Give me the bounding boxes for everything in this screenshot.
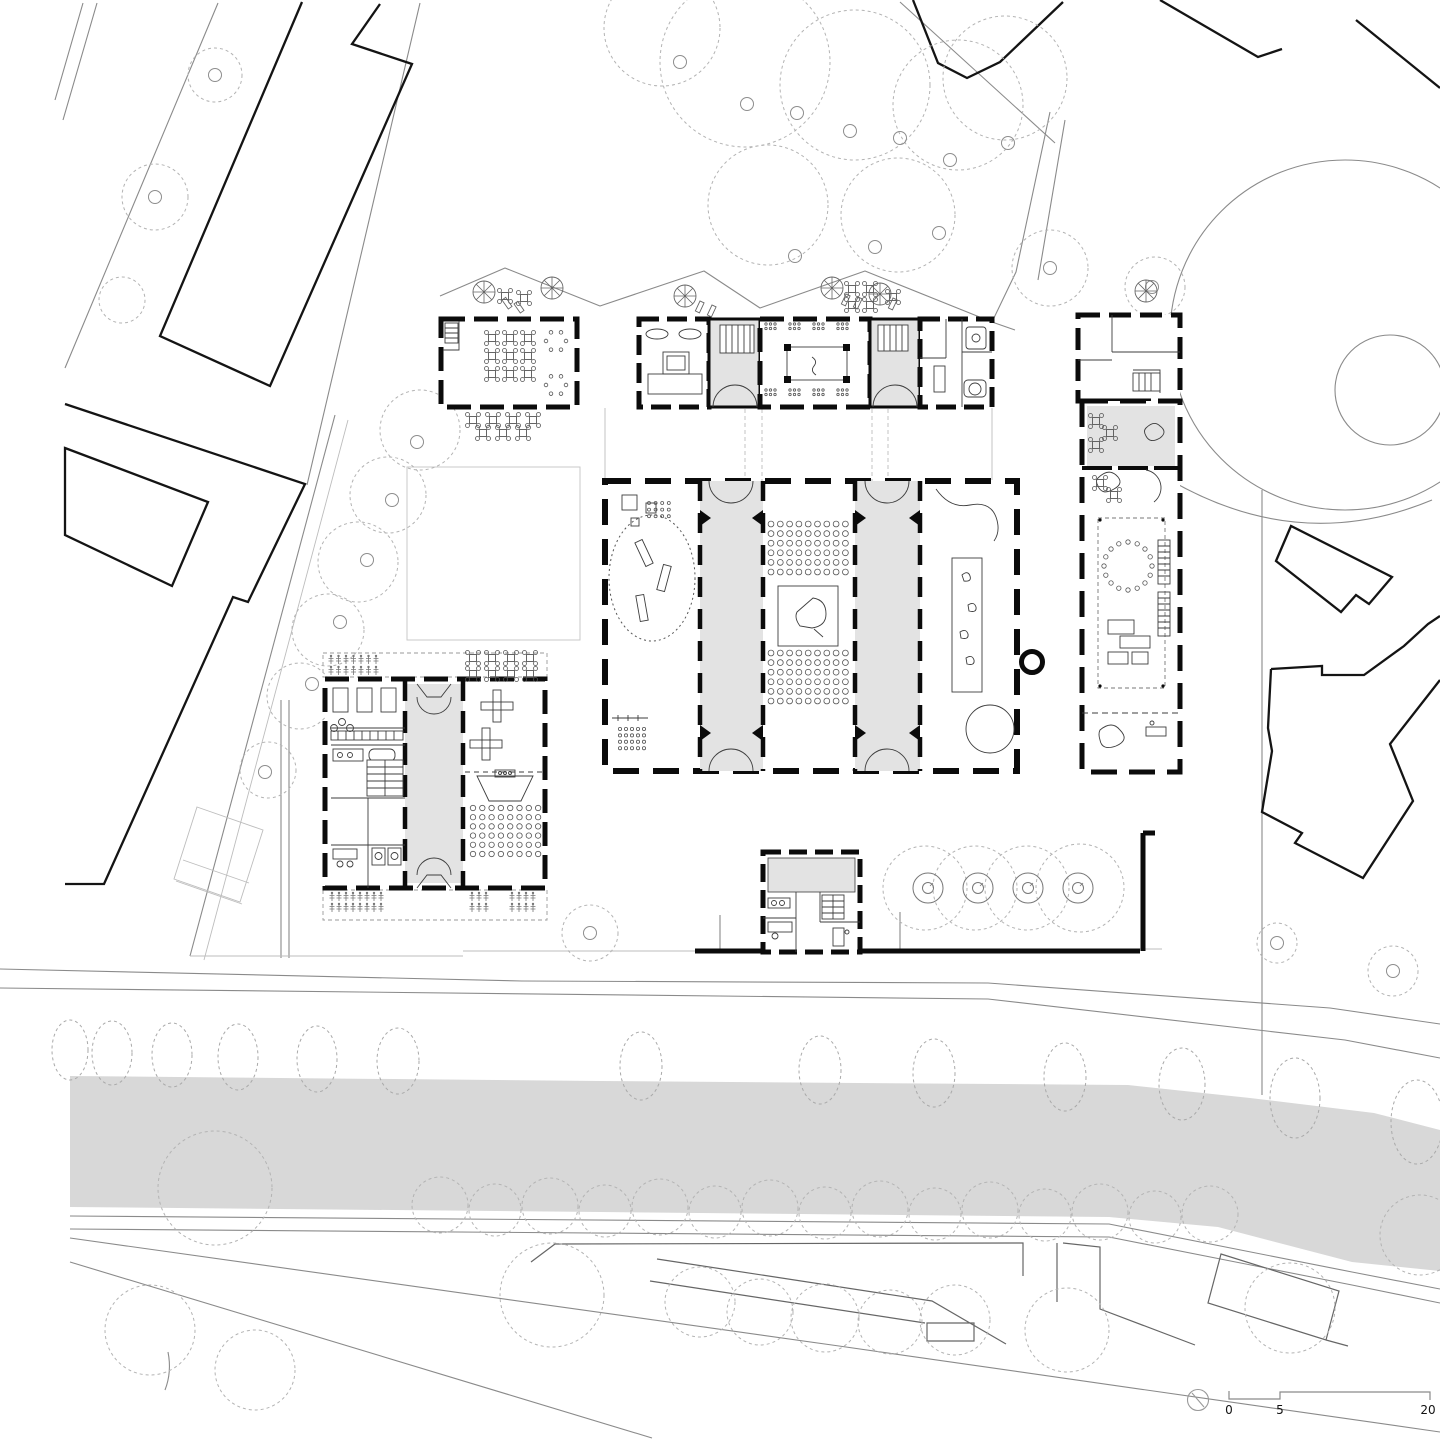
- tree-trunk: [259, 766, 272, 779]
- link-vestibule-1: [709, 319, 760, 407]
- plant-head: [518, 892, 520, 894]
- plant-head: [345, 903, 347, 905]
- plant: [510, 904, 515, 912]
- plant: [524, 893, 529, 901]
- parasol-icon: [869, 283, 891, 305]
- plant-head: [375, 655, 377, 657]
- chair: [897, 290, 901, 294]
- tree-trunk: [944, 154, 957, 167]
- chair: [897, 301, 901, 305]
- chair: [496, 667, 500, 671]
- plant: [517, 904, 522, 912]
- chair: [516, 437, 520, 441]
- tree-trunk: [584, 927, 597, 940]
- tree-canopy: [933, 846, 1017, 930]
- bench: [695, 301, 704, 313]
- chair: [496, 651, 500, 655]
- tree-canopy: [1245, 1263, 1335, 1353]
- chair: [863, 282, 867, 286]
- fountains: [913, 873, 1093, 903]
- street-tree: [52, 1020, 88, 1080]
- plant: [374, 656, 379, 664]
- chair: [496, 437, 500, 441]
- chair: [477, 667, 481, 671]
- plant-head: [380, 892, 382, 894]
- plant-head: [478, 892, 480, 894]
- chair: [506, 413, 510, 417]
- tree-trunk: [334, 616, 347, 629]
- plant-head: [359, 892, 361, 894]
- chair: [466, 651, 470, 655]
- chair: [477, 413, 481, 417]
- chair: [504, 651, 508, 655]
- plant-head: [337, 666, 339, 668]
- plant-head: [373, 892, 375, 894]
- map-legend: 0 5 20: [1188, 1390, 1436, 1418]
- plant: [484, 904, 489, 912]
- table: [508, 671, 515, 678]
- fountain-icon: [1063, 873, 1093, 903]
- bench: [514, 301, 524, 313]
- chair: [466, 413, 470, 417]
- chair: [845, 309, 849, 313]
- plant-head: [367, 655, 369, 657]
- plant: [366, 656, 371, 664]
- plant-head: [375, 666, 377, 668]
- chair: [528, 302, 532, 306]
- school-complex: [325, 315, 1180, 952]
- plant: [510, 893, 515, 901]
- parasols: [473, 277, 1157, 307]
- plant-head: [345, 892, 347, 894]
- pavilion-music-room: [639, 319, 709, 407]
- parasol-spokes: [869, 283, 891, 305]
- tree-canopy: [500, 1243, 604, 1347]
- plant: [359, 667, 364, 675]
- chair: [485, 662, 489, 666]
- plant: [517, 893, 522, 901]
- parasol-spokes: [674, 285, 696, 307]
- tree-trunk: [869, 241, 882, 254]
- tree-trunk: [791, 107, 804, 120]
- chair: [534, 662, 538, 666]
- tree-canopy: [985, 846, 1069, 930]
- plant: [358, 904, 363, 912]
- tree-canopy: [604, 0, 720, 86]
- tree-trunk: [1387, 965, 1400, 978]
- plant: [358, 893, 363, 901]
- plant: [365, 893, 370, 901]
- chair: [528, 291, 532, 295]
- chair: [476, 437, 480, 441]
- chair: [537, 424, 541, 428]
- chair: [886, 290, 890, 294]
- plant: [337, 893, 342, 901]
- chair: [874, 309, 878, 313]
- table: [508, 655, 515, 662]
- tree-canopy: [1125, 257, 1185, 317]
- tree-trunk: [844, 125, 857, 138]
- link-vestibule-2: [870, 319, 920, 407]
- chair: [515, 667, 519, 671]
- south-buildings: [531, 1243, 1348, 1346]
- tree-canopy: [1025, 1288, 1109, 1372]
- south-pavilion: [763, 852, 860, 952]
- plant-head: [330, 655, 332, 657]
- plant: [344, 904, 349, 912]
- parasol-spokes: [473, 281, 495, 303]
- chair: [523, 651, 527, 655]
- chair: [507, 437, 511, 441]
- chair: [534, 667, 538, 671]
- tree-canopy: [99, 277, 145, 323]
- plant: [531, 904, 536, 912]
- table: [510, 417, 517, 424]
- plant-head: [352, 903, 354, 905]
- plant: [351, 667, 356, 675]
- table: [520, 430, 527, 437]
- tree-canopy: [660, 0, 830, 147]
- plant-head: [338, 903, 340, 905]
- table: [527, 655, 534, 662]
- plant: [379, 904, 384, 912]
- chair: [517, 413, 521, 417]
- chair: [496, 662, 500, 666]
- chair: [486, 413, 490, 417]
- tree-canopy: [562, 905, 618, 961]
- plant: [524, 904, 529, 912]
- plant-row: [330, 892, 384, 912]
- chair: [863, 298, 867, 302]
- scale-label-20: 20: [1420, 1403, 1435, 1417]
- plant-head: [380, 903, 382, 905]
- plant-head: [518, 903, 520, 905]
- plant-head: [471, 892, 473, 894]
- plant-head: [359, 903, 361, 905]
- plant: [372, 893, 377, 901]
- tree-canopy: [791, 1284, 859, 1352]
- tree-trunk: [1002, 137, 1015, 150]
- bench: [853, 297, 862, 309]
- table-with-chairs: [863, 298, 878, 313]
- chair: [874, 293, 878, 297]
- tree-trunk: [1044, 262, 1057, 275]
- plant: [344, 893, 349, 901]
- tree-canopy: [708, 145, 828, 265]
- street-tree: [92, 1021, 132, 1085]
- table: [527, 671, 534, 678]
- chair: [856, 282, 860, 286]
- chair: [523, 667, 527, 671]
- table: [489, 655, 496, 662]
- table-with-chairs: [845, 298, 860, 313]
- pavilion-classroom-west: [441, 319, 577, 407]
- plant-head: [338, 892, 340, 894]
- tree-trunk: [674, 56, 687, 69]
- table: [470, 417, 477, 424]
- scale-label-0: 0: [1225, 1403, 1233, 1417]
- chair: [863, 309, 867, 313]
- plant: [477, 893, 482, 901]
- tree-canopy: [122, 164, 188, 230]
- plant: [330, 893, 335, 901]
- plant: [351, 893, 356, 901]
- plant-head: [367, 666, 369, 668]
- tree-trunk: [933, 227, 946, 240]
- chair: [527, 437, 531, 441]
- chair: [504, 667, 508, 671]
- tree-trunk: [306, 678, 319, 691]
- table: [480, 430, 487, 437]
- plant-head: [511, 903, 513, 905]
- tree-canopy: [1368, 946, 1418, 996]
- plant-head: [532, 903, 534, 905]
- plant: [329, 667, 334, 675]
- tree-canopy: [240, 742, 296, 798]
- plant-head: [525, 892, 527, 894]
- pavilion-service: [920, 319, 992, 407]
- plant-head: [331, 892, 333, 894]
- tree-canopy: [780, 10, 930, 160]
- chair: [845, 282, 849, 286]
- plant-head: [366, 892, 368, 894]
- canal: [70, 1076, 1440, 1271]
- plant-head: [485, 903, 487, 905]
- table: [521, 295, 528, 302]
- scale-bar: 0 5 20: [1225, 1391, 1435, 1417]
- plant-row: [510, 892, 536, 912]
- parasol-icon: [473, 281, 495, 303]
- tree-trunk: [386, 494, 399, 507]
- parasol-icon: [1135, 280, 1157, 302]
- table: [490, 417, 497, 424]
- parasol-spokes: [541, 277, 563, 299]
- plant-head: [337, 655, 339, 657]
- tree-trunk: [149, 191, 162, 204]
- parasol-spokes: [821, 277, 843, 299]
- tree-trunk: [209, 69, 222, 82]
- site-plan-canvas: 0 5 20: [0, 0, 1440, 1440]
- plant-row: [470, 892, 489, 912]
- plant-head: [485, 892, 487, 894]
- chair: [466, 662, 470, 666]
- plant-head: [471, 903, 473, 905]
- table: [502, 293, 509, 300]
- tree-trunk: [1271, 937, 1284, 950]
- schoolyard-field: [407, 467, 580, 640]
- plant: [365, 904, 370, 912]
- plant: [337, 904, 342, 912]
- chair: [537, 413, 541, 417]
- tree-canopy: [105, 1285, 195, 1375]
- tree-trunk: [411, 436, 424, 449]
- bench: [707, 305, 716, 317]
- plant-head: [360, 666, 362, 668]
- table: [500, 430, 507, 437]
- chair: [517, 291, 521, 295]
- tree-canopy: [1036, 844, 1124, 932]
- plant-head: [352, 666, 354, 668]
- southwest-building: [325, 679, 545, 888]
- plant: [336, 667, 341, 675]
- tree-trunk: [741, 98, 754, 111]
- plant: [351, 904, 356, 912]
- parasol-icon: [674, 285, 696, 307]
- plant: [531, 893, 536, 901]
- chair: [477, 651, 481, 655]
- plant: [366, 667, 371, 675]
- tree-canopy: [920, 1285, 990, 1355]
- chair: [523, 662, 527, 666]
- tree-trunk: [361, 554, 374, 567]
- plant-head: [525, 903, 527, 905]
- site-plan: 0 5 20: [0, 0, 1440, 1440]
- table-with-chairs: [498, 289, 513, 304]
- plant: [344, 667, 349, 675]
- pavilion-northeast: [1078, 315, 1180, 401]
- chair: [498, 289, 502, 293]
- plant-head: [345, 655, 347, 657]
- chair: [485, 651, 489, 655]
- plant-head: [511, 892, 513, 894]
- chair: [497, 413, 501, 417]
- fountain-rim: [913, 873, 943, 903]
- plant: [470, 893, 475, 901]
- plant-head: [373, 903, 375, 905]
- chair: [498, 300, 502, 304]
- plant-head: [352, 892, 354, 894]
- parking-strip: [174, 807, 263, 904]
- plant-head: [532, 892, 534, 894]
- plant: [330, 904, 335, 912]
- chair: [534, 651, 538, 655]
- chair: [515, 662, 519, 666]
- table: [470, 655, 477, 662]
- parasol-icon: [821, 277, 843, 299]
- tree-canopy: [1257, 923, 1297, 963]
- tree-canopy: [1012, 230, 1088, 306]
- tree-canopy: [883, 846, 967, 930]
- chair: [856, 293, 860, 297]
- table: [470, 671, 477, 678]
- chair: [466, 424, 470, 428]
- parasol-spokes: [1135, 280, 1157, 302]
- plant: [470, 904, 475, 912]
- parasol-icon: [541, 277, 563, 299]
- north-arrow-icon: [1188, 1390, 1209, 1411]
- chair: [526, 413, 530, 417]
- tree-canopy: [215, 1330, 295, 1410]
- chair: [504, 662, 508, 666]
- plant: [372, 904, 377, 912]
- chair: [466, 667, 470, 671]
- table: [489, 671, 496, 678]
- plant: [359, 656, 364, 664]
- landmark-circle: [1022, 652, 1043, 673]
- table: [530, 417, 537, 424]
- chair: [509, 289, 513, 293]
- plant-head: [478, 903, 480, 905]
- chair: [863, 293, 867, 297]
- chair: [477, 662, 481, 666]
- chair: [487, 437, 491, 441]
- scale-label-5: 5: [1276, 1403, 1284, 1417]
- table: [849, 286, 856, 293]
- plant-head: [331, 903, 333, 905]
- plant-head: [366, 903, 368, 905]
- plant-head: [352, 655, 354, 657]
- chair: [515, 651, 519, 655]
- plant: [484, 893, 489, 901]
- plant: [344, 656, 349, 664]
- tree-canopy: [318, 522, 398, 602]
- sports-field: [1170, 160, 1440, 523]
- plant: [374, 667, 379, 675]
- tree-canopy: [841, 158, 955, 272]
- fountain-rim: [1063, 873, 1093, 903]
- plant: [336, 656, 341, 664]
- plant: [379, 893, 384, 901]
- east-wing: [1082, 401, 1180, 772]
- plant: [329, 656, 334, 664]
- plant: [477, 904, 482, 912]
- fountain-icon: [913, 873, 943, 903]
- plant-head: [330, 666, 332, 668]
- plant-head: [360, 655, 362, 657]
- chair: [485, 667, 489, 671]
- plant-head: [345, 666, 347, 668]
- tree-canopy: [858, 1290, 922, 1354]
